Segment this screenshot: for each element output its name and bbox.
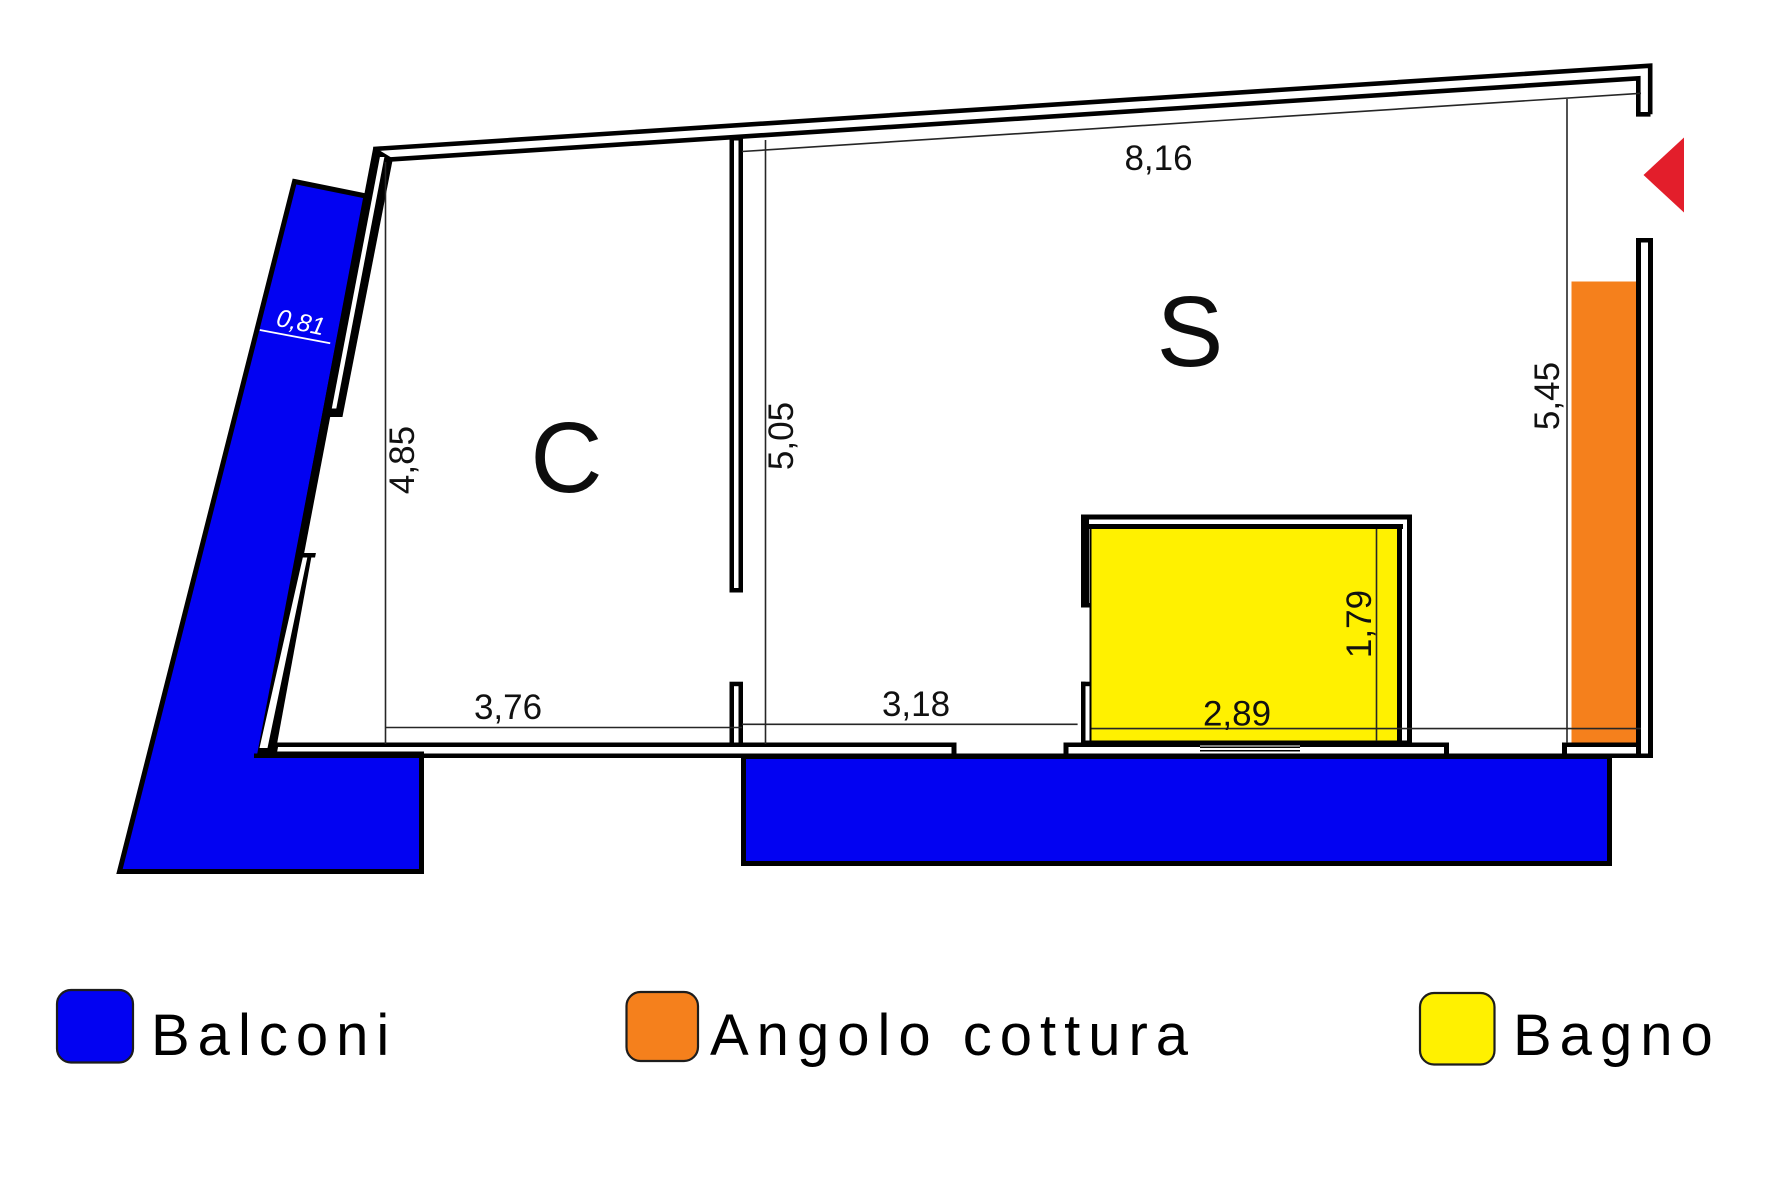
svg-text:4,85: 4,85 (383, 426, 422, 494)
svg-text:2,89: 2,89 (1203, 695, 1271, 734)
svg-text:Bagno: Bagno (1513, 1003, 1721, 1068)
svg-text:3,76: 3,76 (474, 688, 542, 727)
svg-text:8,16: 8,16 (1124, 139, 1192, 178)
svg-text:Balconi: Balconi (151, 1003, 397, 1068)
svg-text:5,05: 5,05 (762, 402, 801, 470)
svg-text:Angolo cottura: Angolo cottura (710, 1003, 1196, 1068)
svg-text:1,79: 1,79 (1340, 590, 1379, 658)
svg-text:S: S (1157, 276, 1224, 388)
svg-text:C: C (530, 402, 602, 514)
svg-text:5,45: 5,45 (1528, 362, 1567, 430)
svg-text:3,18: 3,18 (882, 685, 950, 724)
